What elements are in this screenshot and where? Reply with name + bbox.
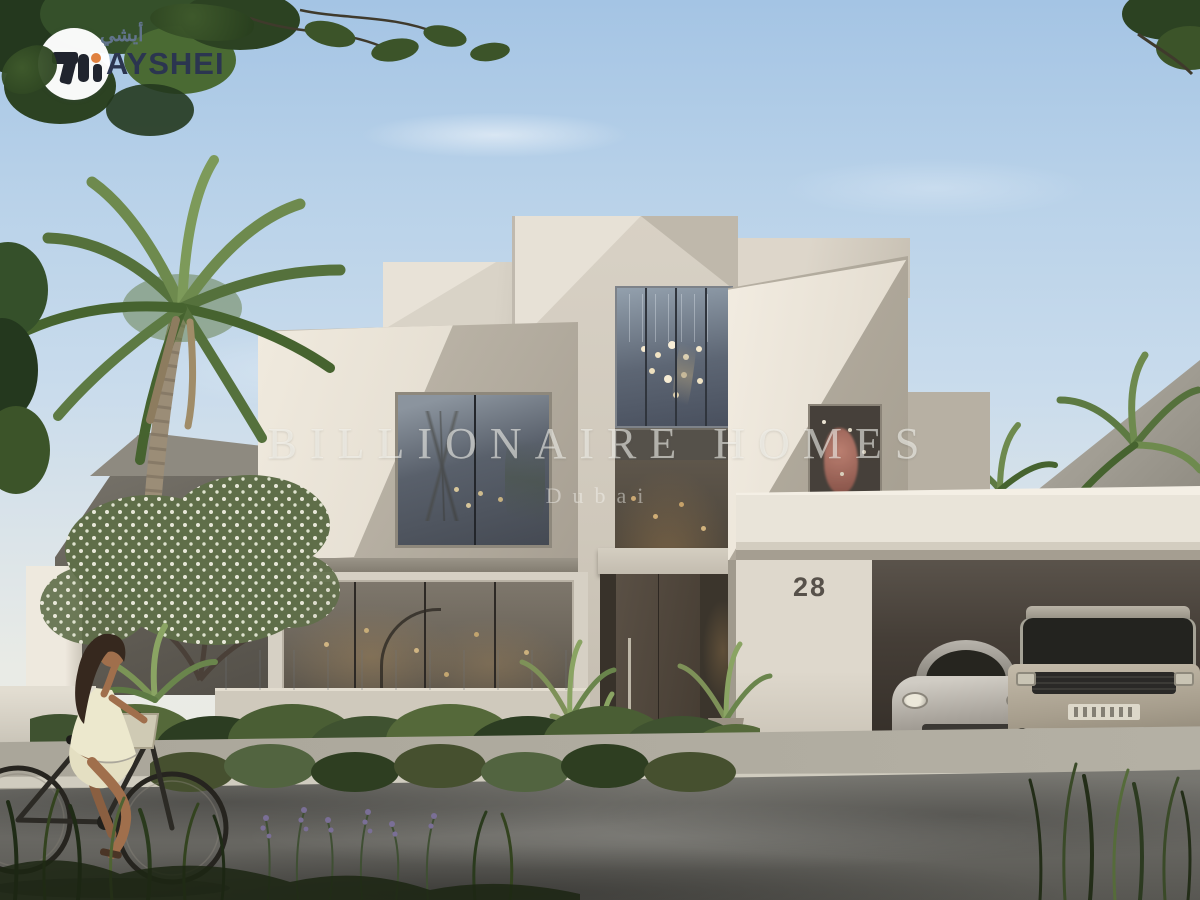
leaf-cluster <box>1122 0 1200 74</box>
logo-brand-text: AYSHEI <box>106 46 225 82</box>
palm-fronds <box>28 160 340 460</box>
dark-undergrowth <box>0 860 580 900</box>
window-mullion <box>645 288 647 426</box>
logo-mark-accent-dot <box>91 53 101 63</box>
logo-arabic-text: أيشي <box>100 24 143 47</box>
interior-artwork <box>824 428 858 494</box>
foreground-grass-right <box>1010 740 1200 900</box>
logo-mark-icon <box>78 54 89 82</box>
villa-exterior-render: 28 <box>0 0 1200 900</box>
cloud <box>780 158 1090 218</box>
chandelier-wires <box>629 294 709 342</box>
plate-characters <box>1074 707 1134 717</box>
upper-glass-window <box>615 286 733 428</box>
window-mullion <box>675 288 677 426</box>
license-plate <box>1068 704 1140 720</box>
windshield <box>1020 618 1196 670</box>
branch-top-right <box>1080 0 1200 95</box>
headlight <box>902 692 928 709</box>
logo-mark-icon <box>93 64 102 82</box>
headlight <box>1016 672 1036 686</box>
grass-blades <box>1030 764 1190 900</box>
foreground-grass-left <box>0 750 580 900</box>
window-mullion <box>705 288 707 426</box>
front-grille <box>1032 672 1176 694</box>
interior-lights <box>822 420 826 424</box>
lavender-blooms <box>260 807 437 838</box>
garage-canopy <box>736 486 1200 562</box>
headlight <box>1174 672 1194 686</box>
